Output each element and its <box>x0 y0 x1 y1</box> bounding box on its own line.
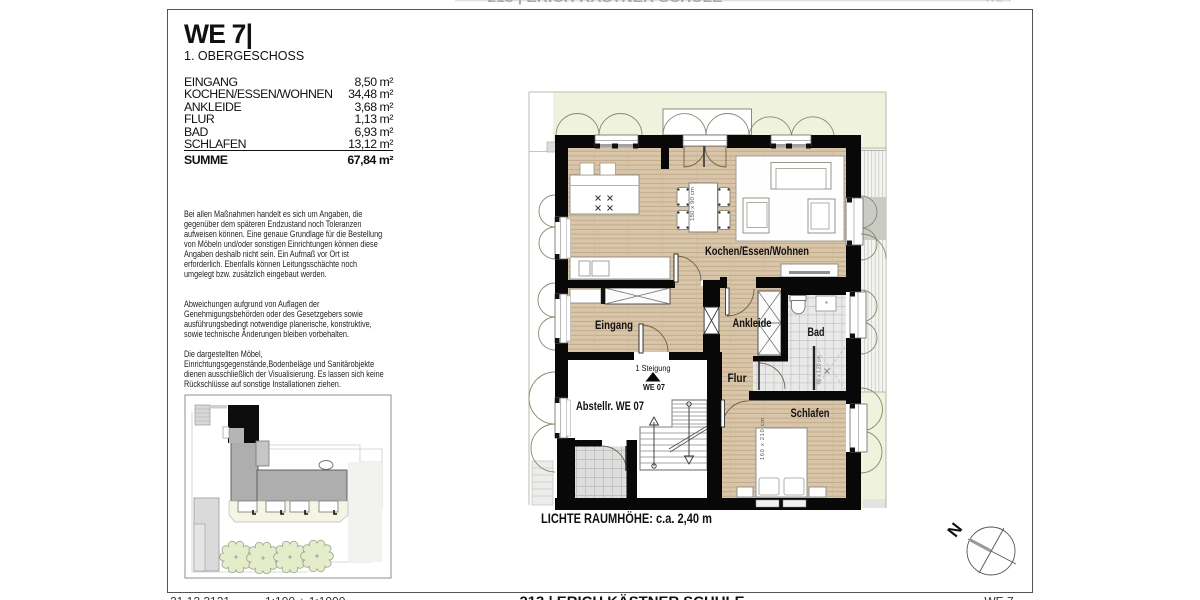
svg-text:LICHTE RAUMHÖHE: c.a. 2,40 m: LICHTE RAUMHÖHE: c.a. 2,40 m <box>541 511 712 526</box>
svg-text:WE 7: WE 7 <box>984 595 1014 600</box>
svg-text:Ankleide: Ankleide <box>733 318 772 330</box>
svg-text:150 x 90 cm: 150 x 90 cm <box>690 187 696 221</box>
svg-text:213 | ERICH KÄSTNER SCHULE: 213 | ERICH KÄSTNER SCHULE <box>488 0 723 5</box>
svg-text:1:100 + 1:1000: 1:100 + 1:1000 <box>265 595 346 600</box>
svg-text:160 x 210 cm: 160 x 210 cm <box>760 418 766 460</box>
svg-text:Flur: Flur <box>728 373 747 385</box>
svg-text:N: N <box>944 519 967 540</box>
svg-text:Bad: Bad <box>808 327 825 339</box>
svg-text:Abstellr. WE 07: Abstellr. WE 07 <box>576 401 644 413</box>
svg-text:213 | ERICH KÄSTNER SCHULE: 213 | ERICH KÄSTNER SCHULE <box>520 593 745 600</box>
svg-text:WE 7: WE 7 <box>984 0 1014 5</box>
svg-text:Kochen/Essen/Wohnen: Kochen/Essen/Wohnen <box>705 244 809 258</box>
svg-text:21.12.2121: 21.12.2121 <box>170 595 230 600</box>
svg-text:90 x 1,20 cm: 90 x 1,20 cm <box>817 355 823 384</box>
svg-text:1 Steigung: 1 Steigung <box>636 364 671 373</box>
svg-text:WE 07: WE 07 <box>643 382 665 392</box>
svg-text:Schlafen: Schlafen <box>791 408 830 420</box>
svg-text:Eingang: Eingang <box>595 320 633 332</box>
